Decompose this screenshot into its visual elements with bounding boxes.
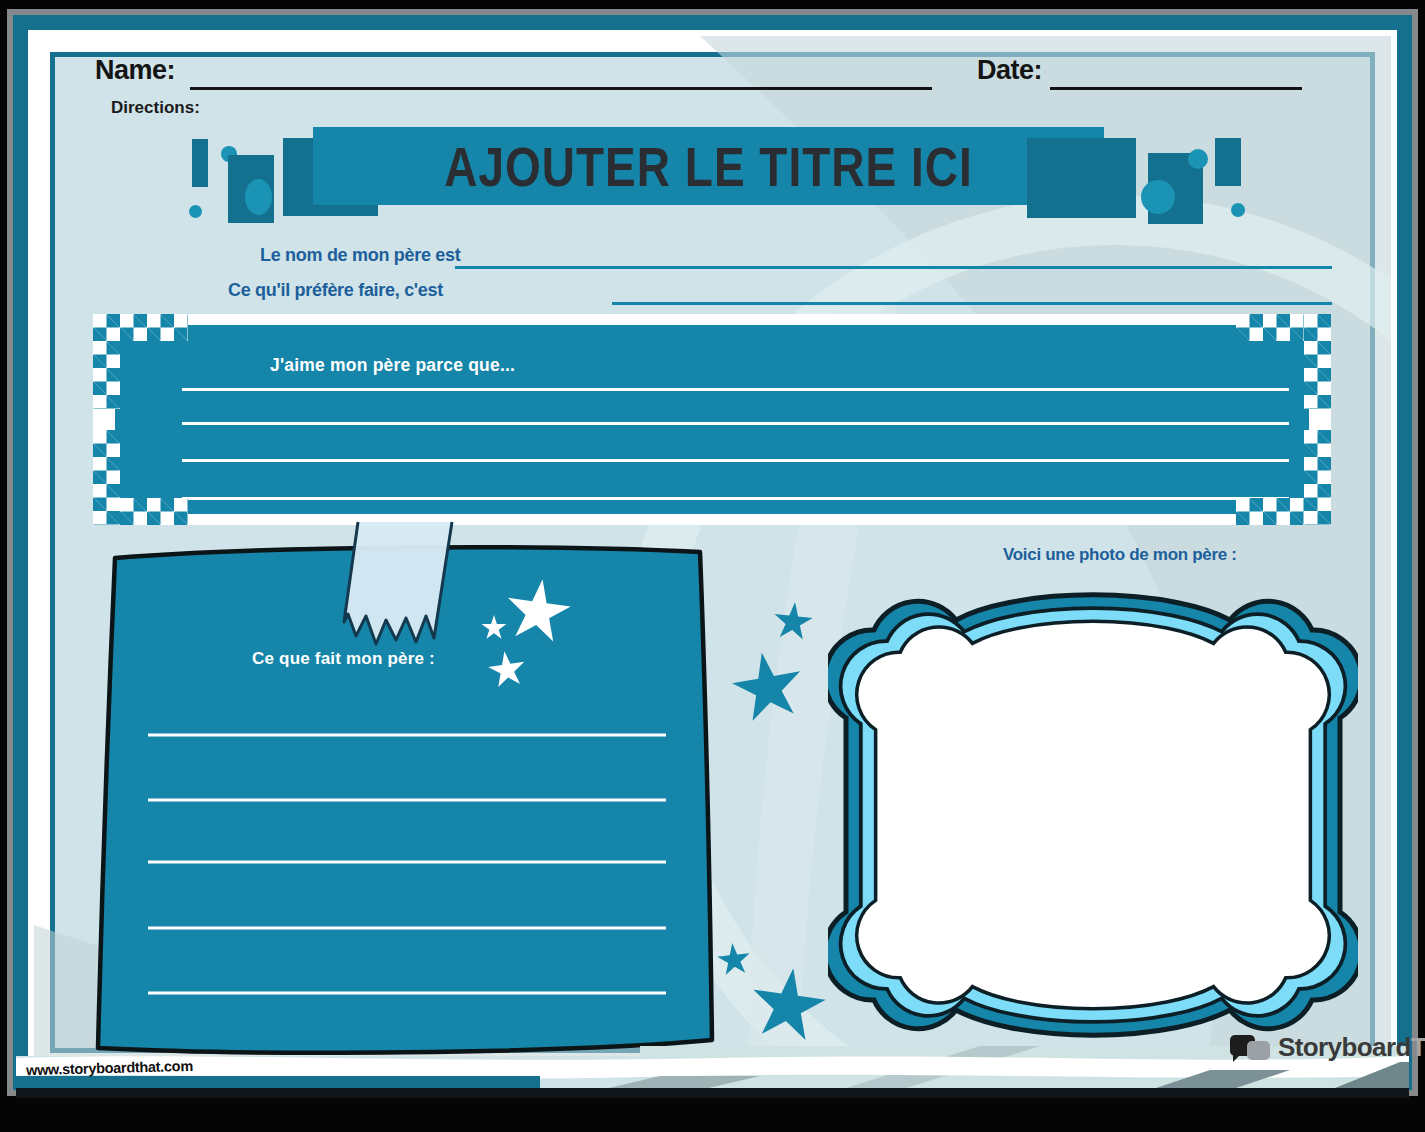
favorite-activity-prompt: Ce qu'il préfère faire, c'est: [228, 280, 443, 301]
bottom-dark-edge: [16, 1088, 1409, 1098]
love-write-line-2[interactable]: [182, 422, 1289, 425]
speech-bubble-icon: [1247, 1041, 1270, 1060]
love-reason-box: J'aime mon père parce que...: [93, 314, 1331, 525]
banner-title-text: AJOUTER LE TITRE ICI: [444, 133, 973, 199]
checker-bottom-left-v: [93, 430, 120, 525]
banner-deco-left-dot: [189, 205, 202, 218]
name-write-line[interactable]: [190, 87, 932, 90]
checker-top-left-v: [93, 314, 120, 409]
father-does-prompt: Ce que fait mon père :: [252, 649, 435, 669]
note-paper: [86, 516, 730, 1076]
banner-deco-right-bar: [1215, 138, 1241, 186]
checker-top-right-v: [1304, 314, 1331, 409]
father-name-write-line[interactable]: [455, 266, 1332, 269]
banner-deco-right-underlay: [1027, 138, 1136, 218]
bottom-edge-decoration: [0, 1028, 1425, 1098]
banner-deco-right-circle-large: [1141, 180, 1175, 214]
checker-bottom-right-v: [1304, 430, 1331, 525]
date-write-line[interactable]: [1050, 87, 1302, 90]
logo-text: StoryboardThat: [1278, 1032, 1425, 1063]
date-label: Date:: [977, 55, 1042, 86]
banner-deco-left-bar: [192, 139, 208, 187]
love-reason-prompt: J'aime mon père parce que...: [270, 355, 515, 376]
love-write-line-4[interactable]: [182, 497, 1289, 500]
logo-text-primary: Storyboard: [1278, 1032, 1411, 1062]
photo-frame[interactable]: [828, 576, 1358, 1054]
directions-label: Directions:: [111, 98, 200, 118]
banner-deco-left-ellipse: [245, 179, 272, 215]
banner-deco-right-circle-small: [1188, 149, 1208, 169]
favorite-activity-write-line[interactable]: [612, 302, 1332, 305]
love-reason-box-core: J'aime mon père parce que...: [115, 325, 1309, 514]
banner-deco-right-dot: [1231, 203, 1245, 217]
logo-text-secondary: That: [1411, 1032, 1425, 1062]
worksheet-page: Name: Date: Directions: AJOUTER LE TITRE…: [0, 0, 1425, 1132]
love-write-line-3[interactable]: [182, 459, 1289, 462]
photo-placeholder[interactable]: [857, 621, 1330, 1008]
love-write-line-1[interactable]: [182, 388, 1289, 391]
photo-caption: Voici une photo de mon père :: [1003, 545, 1237, 565]
name-label: Name:: [95, 55, 175, 86]
bottom-teal-strip: [16, 1076, 540, 1090]
father-name-prompt: Le nom de mon père est: [260, 245, 460, 266]
title-banner[interactable]: AJOUTER LE TITRE ICI: [313, 127, 1104, 205]
